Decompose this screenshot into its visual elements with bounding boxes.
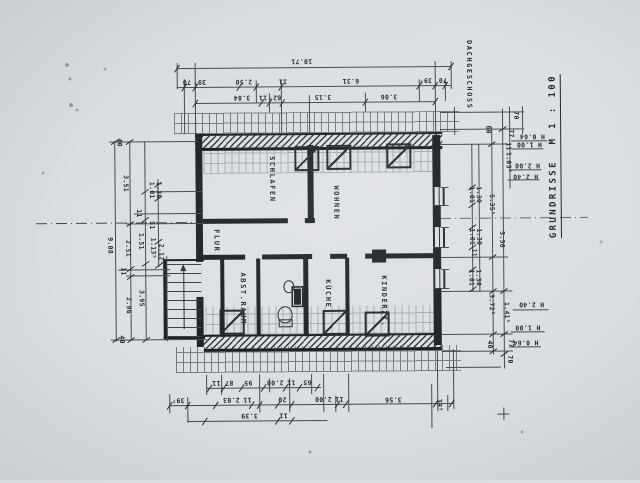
toilet-tank [279,319,293,327]
dimension-label: 2.51 [125,240,132,257]
dimension-line [195,63,197,134]
dimension-label: 62⁵ [269,94,282,101]
dimension-label: 39⁵ [436,399,443,412]
dimension-label: 70 [507,355,514,363]
exterior-wall-right [433,205,441,227]
dimension-label: 1.03⁵ [505,152,512,173]
height-label: H 2.00 [515,162,540,169]
dimension-line [126,223,204,225]
scanned-floorplan-photo: { "sheet": { "floor_label": "DACHGESCHOS… [0,0,640,480]
dimension-label: 3.84 [233,94,250,101]
dimension-label: 11 [259,94,267,101]
dimension-label: 1.30 [155,182,162,199]
dimension-label: 2.50 [235,78,252,85]
height-label: H 2.40 [519,301,544,308]
dimension-line [309,95,310,133]
window [433,227,445,247]
room-label: KINDERZI. [380,275,387,327]
dimension-label: 3.95 [138,290,145,307]
dimension-label: 11 [120,267,127,275]
dimension-line [441,269,449,270]
label-layer: SCHLAFENWOHNENFLURABST.RAUMKÜCHEKINDERZI… [0,0,638,3]
dimension-label: 1.30 [475,186,482,203]
roof-rafter-grid-top [174,111,459,134]
dimension-label: 5.56 [499,231,506,248]
room-label: FLUR [212,229,219,252]
dimension-label: 20 [278,396,286,403]
height-label: H 0.64 [513,339,538,346]
height-label: H 1.00 [515,324,540,331]
interior-wall [256,258,261,336]
dimension-label: 3.39 [241,412,258,419]
dimension-label: 3.72⁵ [488,294,495,315]
dimension-label: 40 [487,340,494,348]
dimension-line [503,408,504,420]
interior-wall [203,218,288,224]
dimension-label: 39⁵ [172,397,185,404]
dimension-label: 87 [225,379,233,386]
dimension-label: 11 [212,380,220,387]
dimension-label: 2.03 [223,396,240,403]
dimension-label: 11 [279,78,287,85]
floor-plan-drawing: SCHLAFENWOHNENFLURABST.RAUMKÜCHEKINDERZI… [0,0,640,483]
dimension-line [187,397,188,423]
dimension-line-layer [0,0,638,3]
chimney-block [372,249,386,262]
dimension-label: 70 [513,111,520,119]
dimension-line [441,187,449,188]
centerline [440,217,588,219]
dimension-label: 1.51 [138,233,145,250]
dimension-label: 1.41⁵ [503,302,510,323]
room-label: WOHNEN [332,185,339,220]
dimension-line [491,127,494,355]
roof-window [326,145,351,170]
dimension-line [441,288,449,289]
dimension-label: 5.35⁵ [488,194,495,215]
height-label: H 2.40 [513,173,538,180]
dimension-line [195,101,435,104]
dimension-label: 51 [149,221,156,229]
roof-window [294,146,319,171]
height-label: H 0.64 [520,133,545,140]
dimension-label: 1.30 [475,269,482,286]
dimension-label: 11 [505,142,512,150]
dimension-line [441,227,449,228]
dimension-line [446,367,501,368]
dimension-label: 11 [335,396,343,403]
dimension-line [513,309,549,310]
exterior-wall-bottom [204,333,442,352]
dimension-line [169,403,453,406]
dimension-line [114,142,117,342]
dimension-label: 77 [508,129,515,137]
dimension-label: 95 [244,379,252,386]
dimension-line [447,395,448,411]
dimension-line [177,85,451,88]
dimension-label: 3.15 [314,94,331,101]
dimension-label: 40 [116,138,123,146]
dimension-line [454,107,455,135]
dimension-line [441,247,449,248]
dimension-line [435,61,437,132]
dimension-label: 1.13⁵ [150,238,157,259]
room-label: KÜCHE [324,279,331,308]
dimension-label: 3.06 [380,93,397,100]
exterior-wall-right [433,288,441,345]
dimension-label: 11 [279,412,287,419]
dimension-label: 11 [243,396,251,403]
dimension-label: 9.08 [107,237,114,254]
interior-wall [303,254,309,336]
dimension-label: 10.71 [291,58,312,65]
paper-speckles [0,0,2,2]
dimension-label: 2.00 [267,379,284,386]
dimension-label: 70 [183,79,191,86]
dimension-line [522,106,523,134]
dimension-label: 3.51 [122,175,129,192]
dimension-label: 11 [471,249,478,257]
dimension-label: 40 [118,335,125,343]
dimension-label: 2.00 [315,396,332,403]
dimension-line [323,374,324,412]
dimension-label: 65 [303,379,311,386]
window [433,269,445,288]
roof-window [323,310,348,335]
dimension-line [187,420,327,422]
room-label: ABST.RAUM [239,272,246,324]
floor-title: DACHGESCHOSS [465,40,472,110]
dimension-label: 2.12⁵ [158,244,165,265]
dimension-label: 39⁵ [193,79,206,86]
dimension-label: 3.56 [385,396,402,403]
window [433,187,445,205]
height-label: H 1.00 [517,141,542,148]
dimension-line [177,66,451,69]
dimension-line [441,205,449,206]
dimension-line [348,374,349,412]
dimension-line [440,144,507,146]
dimension-label: 1.30 [476,228,483,245]
room-label: SCHLAFEN [268,156,275,203]
dimension-label: 11 [136,209,143,217]
dimension-label: 2.96 [125,297,132,314]
dimension-label: 60 [485,125,492,133]
sink-fixture [283,280,294,293]
exterior-wall-left [195,134,203,262]
drawing-title: GRUNDRISSE M 1 : 100 [549,74,562,238]
dimension-label: 70 [439,77,447,84]
dimension-label: 6.31 [342,77,359,84]
dimension-label: 39⁵ [419,77,432,84]
dimension-label: 11 [287,379,295,386]
exterior-wall-right [432,135,440,187]
roof-window [386,143,411,168]
